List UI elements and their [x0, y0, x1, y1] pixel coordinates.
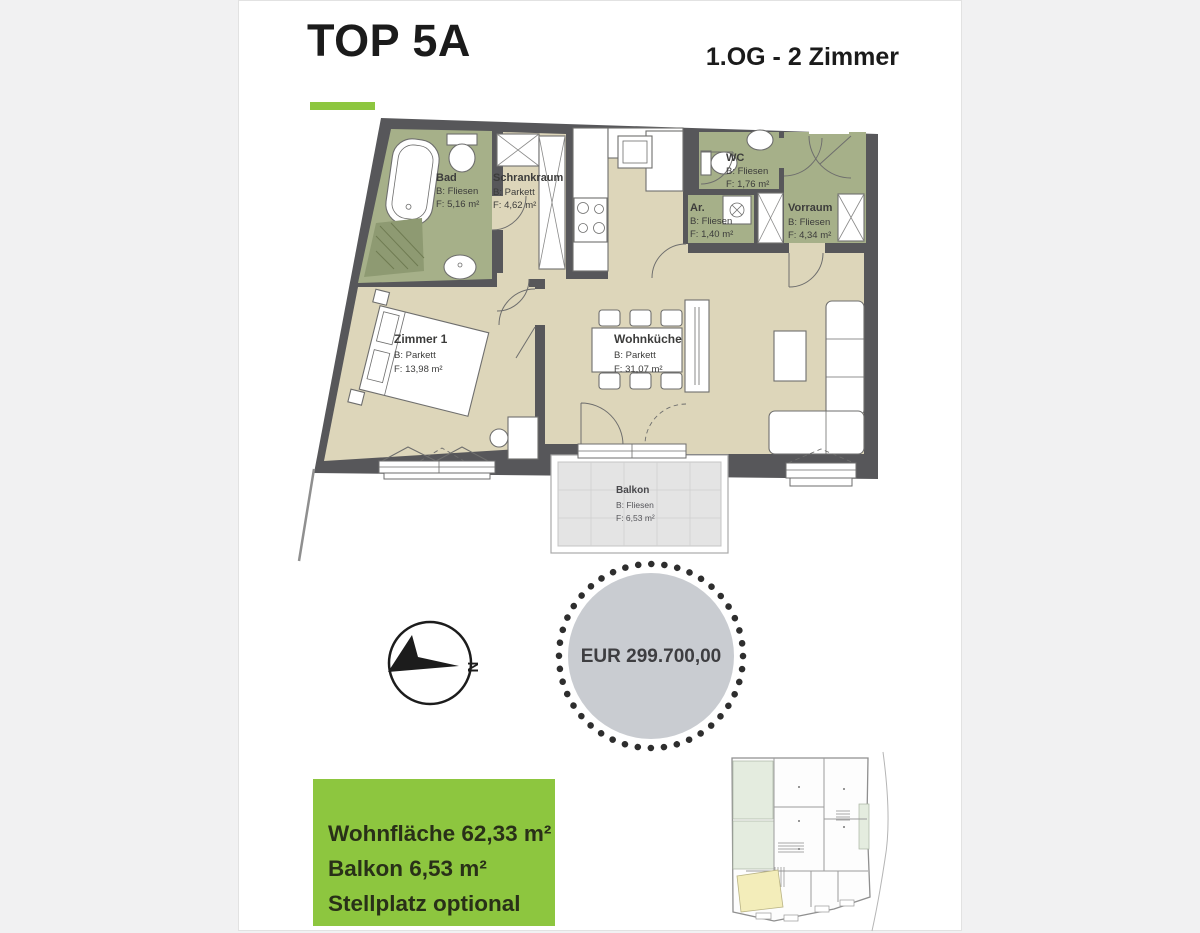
wc-label: WC: [726, 152, 744, 164]
corridor-wardrobe-icon: [758, 193, 783, 243]
svg-text:F: 4,62 m²: F: 4,62 m²: [493, 200, 536, 211]
price-text: EUR 299.700,00: [581, 646, 722, 667]
toilet-icon: [447, 134, 477, 172]
bad-label: Bad: [436, 172, 457, 184]
site-plan: [716, 749, 894, 933]
stove-icon: [574, 198, 607, 242]
abstellraum-door-gap: [682, 244, 688, 276]
vorraum-wardrobe-icon: [838, 194, 864, 241]
abstellraum-label: Ar.: [690, 202, 705, 214]
summary-parking: Stellplatz optional: [328, 886, 555, 921]
desk-chair: [490, 429, 508, 447]
svg-text:F: 13,98 m²: F: 13,98 m²: [394, 364, 443, 375]
wohnkueche-label: Wohnküche: [614, 332, 682, 346]
sink-icon: [444, 255, 476, 279]
svg-text:F: 5,16 m²: F: 5,16 m²: [436, 199, 479, 210]
page-title: TOP 5A: [307, 15, 471, 67]
svg-text:B: Parkett: B: Parkett: [394, 350, 436, 361]
title-underline: [310, 102, 375, 110]
vorraum-door-gap: [789, 243, 825, 253]
schrankraum-door-gap: [497, 273, 529, 287]
zimmer1-door-gap: [535, 289, 545, 325]
balkon-label: Balkon: [616, 485, 649, 496]
summary-living-area: Wohnfläche 62,33 m²: [328, 816, 555, 851]
desk: [508, 417, 538, 459]
floorplan-document-page: TOP 5A 1.OG - 2 Zimmer: [238, 0, 962, 931]
svg-text:B: Parkett: B: Parkett: [614, 350, 656, 361]
site-plan-unit-highlight: [737, 870, 783, 912]
svg-text:F: 6,53 m²: F: 6,53 m²: [616, 513, 655, 523]
neighbor-wall-stub: [299, 469, 314, 561]
svg-text:F: 31,07 m²: F: 31,07 m²: [614, 364, 663, 375]
entrance-door-gap: [809, 121, 849, 134]
wc-door-gap: [779, 138, 784, 168]
svg-text:F: 1,40 m²: F: 1,40 m²: [690, 229, 733, 240]
apartment-floorplan-drawing: Bad B: Fliesen F: 5,16 m² Schrankraum B:…: [296, 111, 896, 761]
site-plan-street-edge: [872, 752, 888, 931]
north-compass-icon: N: [388, 622, 481, 704]
vorraum-label: Vorraum: [788, 202, 833, 214]
site-plan-green-area-2: [733, 821, 774, 869]
price-badge: EUR 299.700,00: [559, 564, 743, 748]
site-plan-green-area-1: [733, 761, 773, 819]
svg-text:B: Parkett: B: Parkett: [493, 187, 535, 198]
floor-and-rooms-label: 1.OG - 2 Zimmer: [706, 43, 899, 72]
wc-sink-icon: [747, 130, 773, 150]
tv-cabinet: [685, 300, 709, 392]
coffee-table: [774, 331, 806, 381]
svg-text:F: 1,76 m²: F: 1,76 m²: [726, 179, 769, 190]
summary-box: Wohnfläche 62,33 m² Balkon 6,53 m² Stell…: [313, 779, 555, 926]
svg-text:B: Fliesen: B: Fliesen: [436, 186, 478, 197]
zimmer1-label: Zimmer 1: [394, 332, 448, 346]
svg-text:B: Fliesen: B: Fliesen: [616, 500, 654, 510]
svg-text:B: Fliesen: B: Fliesen: [726, 166, 768, 177]
compass-north-label: N: [464, 662, 481, 673]
schrankraum-label: Schrankraum: [493, 172, 564, 184]
summary-balcony-area: Balkon 6,53 m²: [328, 851, 555, 886]
svg-text:F: 4,34 m²: F: 4,34 m²: [788, 230, 831, 241]
svg-text:B: Fliesen: B: Fliesen: [788, 217, 830, 228]
site-plan-green-area-3: [859, 804, 869, 849]
svg-text:B: Fliesen: B: Fliesen: [690, 216, 732, 227]
